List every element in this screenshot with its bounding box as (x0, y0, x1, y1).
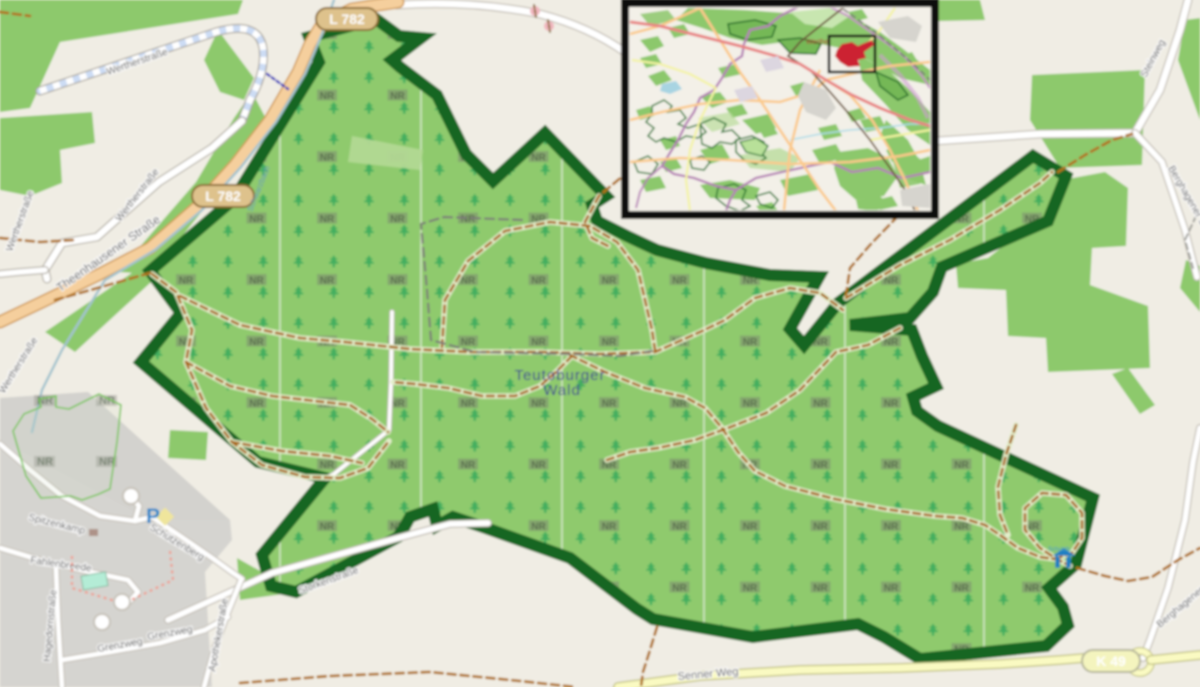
svg-text:L 782: L 782 (205, 188, 241, 204)
svg-text:K 49: K 49 (1096, 653, 1126, 669)
svg-text:Schutzh.: Schutzh. (1048, 547, 1072, 553)
svg-text:P: P (146, 505, 160, 528)
svg-text:Werther: Werther (806, 39, 831, 46)
svg-text:Wald: Wald (543, 382, 581, 399)
svg-text:L 782: L 782 (329, 11, 365, 27)
